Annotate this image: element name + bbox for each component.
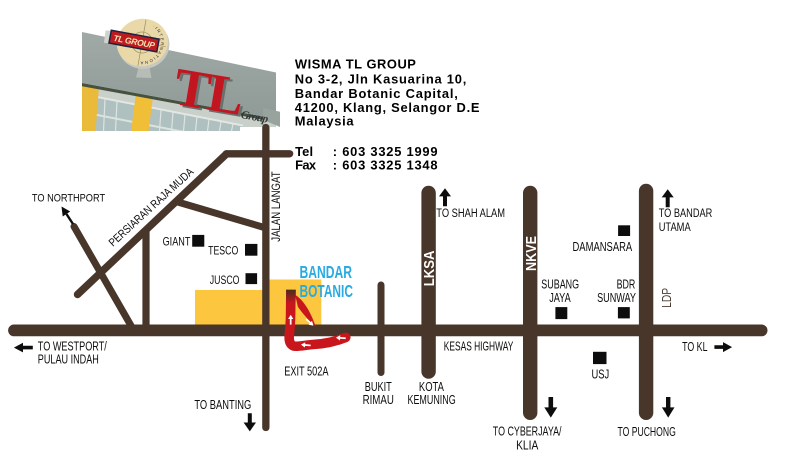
svg-text:PULAU INDAH: PULAU INDAH — [38, 353, 99, 367]
svg-text:NKVE: NKVE — [523, 236, 540, 271]
svg-text:KEMUNING: KEMUNING — [408, 393, 456, 407]
svg-text:JAYA: JAYA — [549, 291, 571, 305]
svg-text:KLIA: KLIA — [516, 438, 539, 452]
svg-text:BANDAR: BANDAR — [300, 262, 353, 282]
svg-text:TO KL: TO KL — [682, 340, 707, 354]
svg-text:UTAMA: UTAMA — [659, 220, 691, 234]
svg-text:TO BANTING: TO BANTING — [194, 398, 251, 412]
svg-text:TESCO: TESCO — [208, 244, 238, 258]
svg-text:Bandar Botanic Capital,: Bandar Botanic Capital, — [295, 86, 458, 101]
svg-text:JALAN LANGAT: JALAN LANGAT — [269, 171, 283, 242]
svg-text:TO SHAH ALAM: TO SHAH ALAM — [436, 206, 505, 220]
svg-text:TO WESTPORT/: TO WESTPORT/ — [38, 340, 107, 354]
svg-text:JUSCO: JUSCO — [210, 273, 240, 287]
svg-text:BOTANIC: BOTANIC — [300, 281, 354, 301]
svg-text:LKSA: LKSA — [421, 250, 438, 286]
svg-text:TO BANDAR: TO BANDAR — [659, 206, 713, 220]
svg-text:RIMAU: RIMAU — [363, 393, 394, 407]
svg-text:SUBANG: SUBANG — [541, 278, 579, 292]
svg-text:KESAS HIGHWAY: KESAS HIGHWAY — [444, 340, 514, 354]
svg-text:EXIT 502A: EXIT 502A — [284, 364, 329, 378]
svg-text:Malaysia: Malaysia — [295, 114, 355, 129]
svg-text:GIANT: GIANT — [163, 235, 191, 249]
svg-text:DAMANSARA: DAMANSARA — [573, 240, 633, 254]
svg-text:Fax: Fax — [295, 157, 317, 172]
svg-text:BDR: BDR — [617, 278, 636, 292]
svg-text:TO NORTHPORT: TO NORTHPORT — [32, 192, 105, 204]
svg-text:LDP: LDP — [659, 288, 674, 308]
svg-text:No 3-2, Jln Kasuarina 10,: No 3-2, Jln Kasuarina 10, — [295, 72, 467, 87]
svg-text:TO PUCHONG: TO PUCHONG — [618, 425, 676, 439]
svg-text:TO CYBERJAYA/: TO CYBERJAYA/ — [493, 424, 562, 438]
svg-text:TL: TL — [170, 56, 247, 126]
svg-text:USJ: USJ — [592, 368, 610, 382]
svg-text:SUNWAY: SUNWAY — [597, 291, 636, 305]
svg-text:WISMA TL GROUP: WISMA TL GROUP — [295, 56, 416, 71]
svg-text:: 603 3325 1348: : 603 3325 1348 — [333, 157, 438, 172]
